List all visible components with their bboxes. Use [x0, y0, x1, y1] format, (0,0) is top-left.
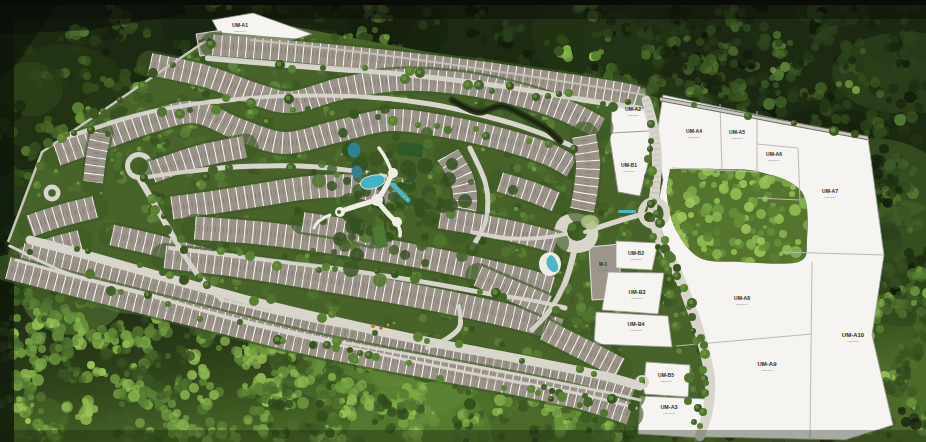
svg-text:UM-B2: UM-B2	[628, 250, 644, 256]
svg-text:UM-A10: UM-A10	[842, 332, 865, 338]
svg-text:UM-A7: UM-A7	[822, 188, 838, 194]
svg-text:UM-A2: UM-A2	[625, 106, 641, 112]
svg-text:UM-A5: UM-A5	[729, 129, 745, 135]
svg-text:UM-A9: UM-A9	[758, 361, 778, 367]
svg-text:UM-B3: UM-B3	[628, 289, 645, 295]
svg-text:UM-B5: UM-B5	[658, 372, 674, 378]
svg-text:UM-A3: UM-A3	[660, 404, 677, 410]
svg-text:UM-B1: UM-B1	[621, 162, 637, 168]
svg-text:UM-B4: UM-B4	[627, 321, 644, 327]
svg-text:UM-A6: UM-A6	[766, 151, 782, 157]
svg-text:UM-A4: UM-A4	[686, 128, 702, 134]
svg-text:UM-A8: UM-A8	[734, 295, 750, 301]
svg-text:M-1: M-1	[599, 262, 607, 267]
svg-text:UM-A1: UM-A1	[232, 22, 248, 28]
